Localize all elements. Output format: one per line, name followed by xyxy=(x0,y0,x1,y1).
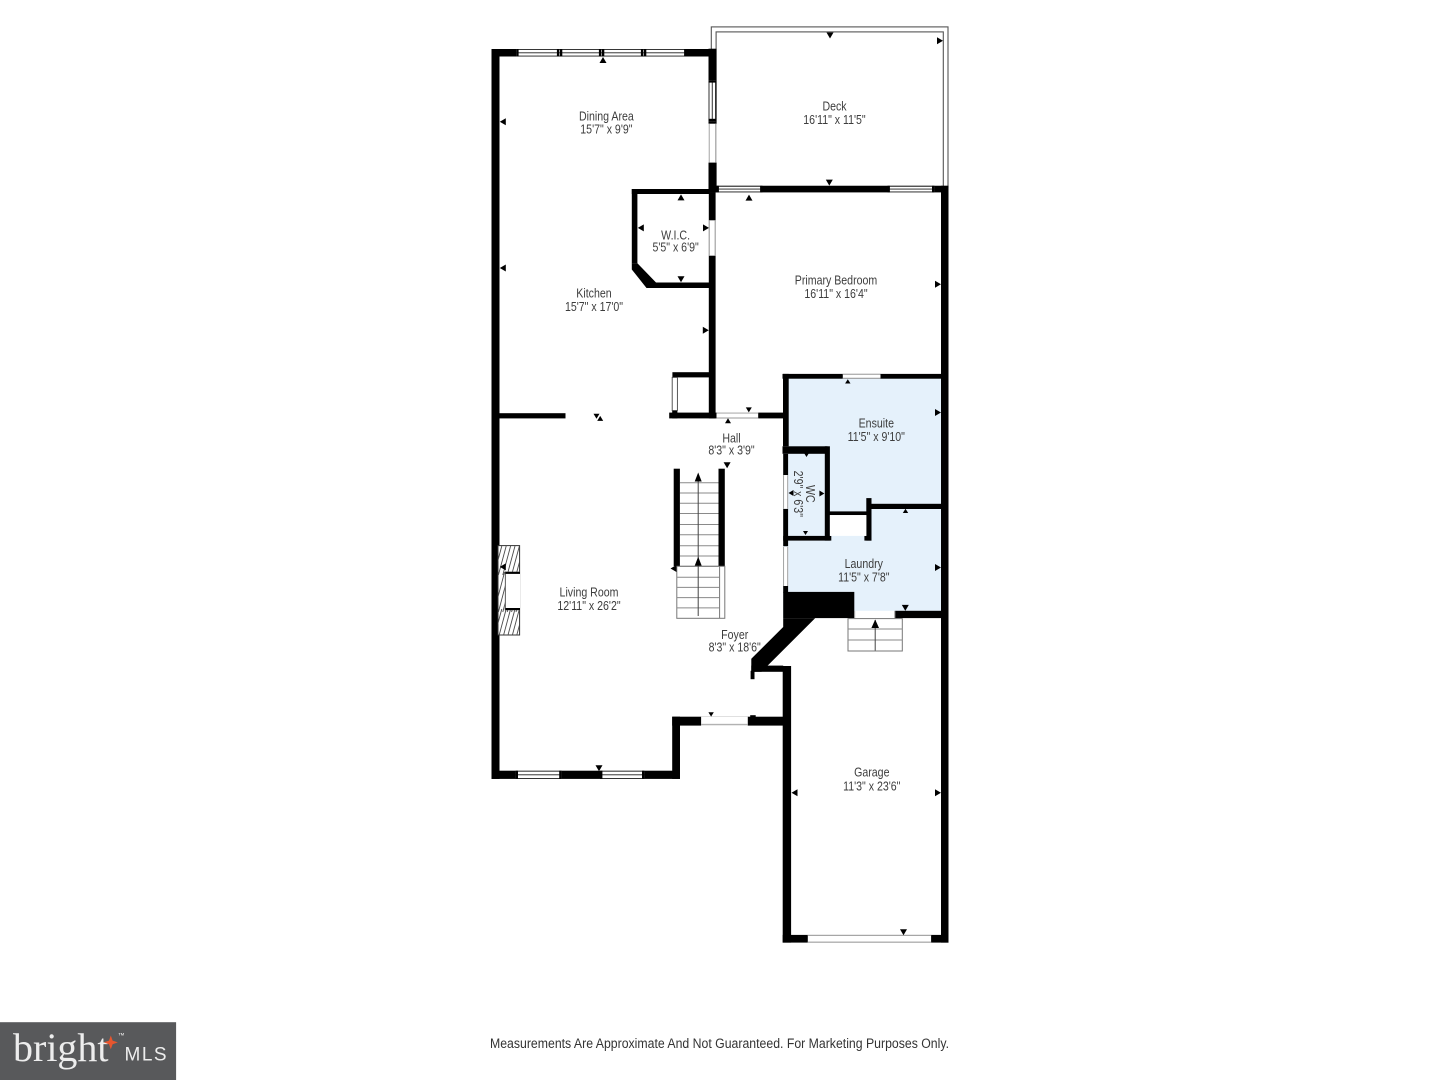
svg-text:11'5" x 7'8": 11'5" x 7'8" xyxy=(838,570,890,585)
svg-text:Measurements Are Approximate A: Measurements Are Approximate And Not Gua… xyxy=(490,1036,949,1051)
svg-text:15'7" x 17'0": 15'7" x 17'0" xyxy=(565,299,623,314)
svg-text:2'9" x 6'3": 2'9" x 6'3" xyxy=(791,471,806,518)
svg-text:15'7" x 9'9": 15'7" x 9'9" xyxy=(580,122,633,137)
svg-text:16'11" x 16'4": 16'11" x 16'4" xyxy=(804,286,868,301)
svg-text:™: ™ xyxy=(118,1033,125,1040)
svg-text:MLS: MLS xyxy=(125,1044,169,1065)
svg-text:12'11" x 26'2": 12'11" x 26'2" xyxy=(557,598,621,613)
svg-text:5'5" x 6'9": 5'5" x 6'9" xyxy=(652,239,699,254)
svg-text:11'5" x 9'10": 11'5" x 9'10" xyxy=(848,429,906,444)
svg-text:8'3" x 3'9": 8'3" x 3'9" xyxy=(708,443,755,458)
svg-text:8'3" x 18'6": 8'3" x 18'6" xyxy=(709,640,762,655)
svg-text:Garage: Garage xyxy=(854,764,889,779)
svg-text:11'3" x 23'6": 11'3" x 23'6" xyxy=(843,779,901,794)
svg-text:bright: bright xyxy=(13,1025,109,1070)
svg-text:16'11" x 11'5": 16'11" x 11'5" xyxy=(803,112,866,127)
